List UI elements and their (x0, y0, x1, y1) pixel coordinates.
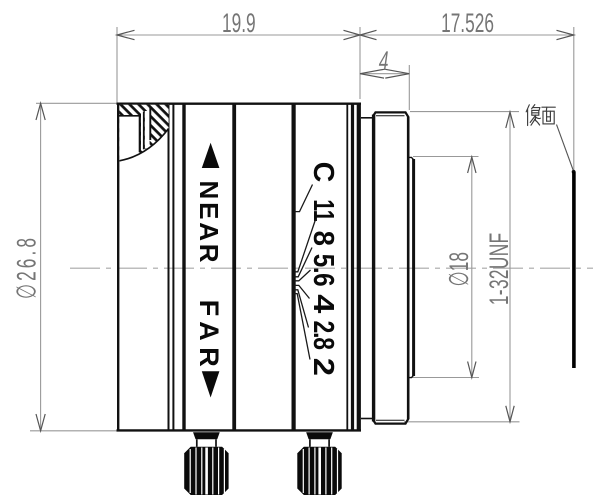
svg-text:NEAR: NEAR (194, 181, 224, 266)
svg-text:2: 2 (307, 358, 339, 376)
svg-text:19.9: 19.9 (222, 7, 256, 38)
svg-text:17.526: 17.526 (441, 7, 494, 38)
svg-text:FAR: FAR (194, 300, 224, 374)
svg-text:8: 8 (308, 231, 339, 246)
svg-text:∅26.8: ∅26.8 (10, 235, 41, 299)
svg-text:1-32UNF: 1-32UNF (483, 232, 514, 305)
svg-text:1: 1 (307, 210, 339, 222)
svg-text:C: C (307, 162, 339, 183)
svg-text:4: 4 (307, 294, 339, 314)
svg-text:5.6: 5.6 (307, 254, 339, 286)
svg-text:2.8: 2.8 (307, 321, 338, 350)
svg-text:∅18: ∅18 (443, 252, 474, 286)
